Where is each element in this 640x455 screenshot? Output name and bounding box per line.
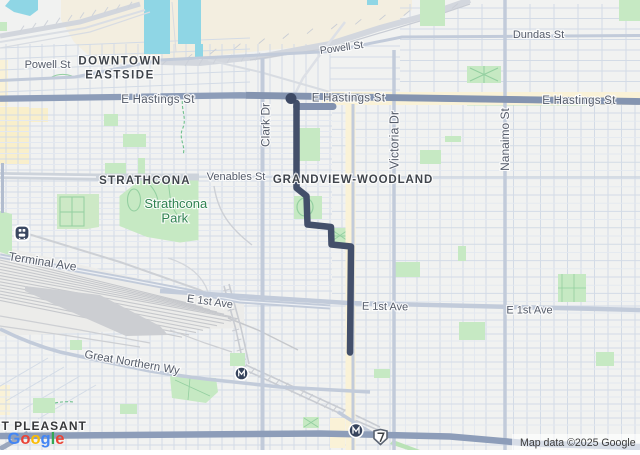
svg-text:GRANDVIEW-WOODLAND: GRANDVIEW-WOODLAND [273,174,433,186]
svg-text:Powell St: Powell St [25,59,71,71]
svg-text:E Hastings St: E Hastings St [312,93,386,105]
svg-text:Clark Dr: Clark Dr [259,103,273,147]
svg-text:E 1st Ave: E 1st Ave [362,301,408,314]
svg-text:Map data ©2025 Google: Map data ©2025 Google [520,437,636,449]
svg-text:EASTSIDE: EASTSIDE [85,70,155,82]
svg-text:E Hastings St: E Hastings St [121,94,195,106]
svg-text:Victoria Dr: Victoria Dr [388,111,402,169]
svg-text:E Hastings St: E Hastings St [542,95,616,107]
svg-text:Dundas St: Dundas St [513,29,564,41]
svg-text:Strathcona: Strathcona [144,196,208,211]
svg-text:Google: Google [8,430,65,448]
svg-text:E 1st Ave: E 1st Ave [506,305,552,317]
svg-text:Venables St: Venables St [207,171,266,183]
svg-text:Nanaimo St: Nanaimo St [498,107,512,170]
svg-text:Park: Park [161,211,188,226]
svg-text:DOWNTOWN: DOWNTOWN [78,56,161,68]
svg-text:STRATHCONA: STRATHCONA [99,175,191,187]
